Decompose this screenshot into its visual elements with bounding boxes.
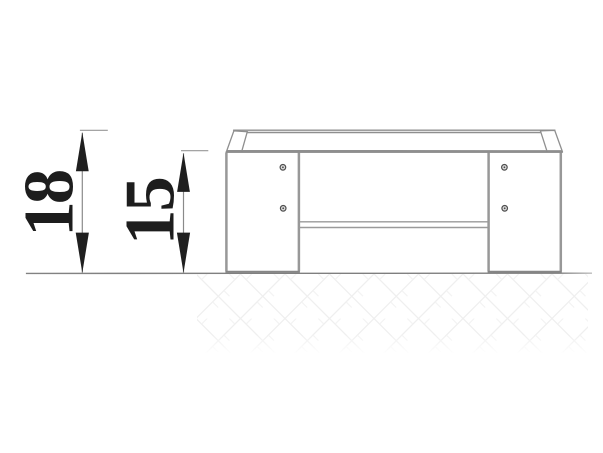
svg-text:18: 18: [11, 170, 89, 236]
svg-text:15: 15: [111, 178, 189, 245]
